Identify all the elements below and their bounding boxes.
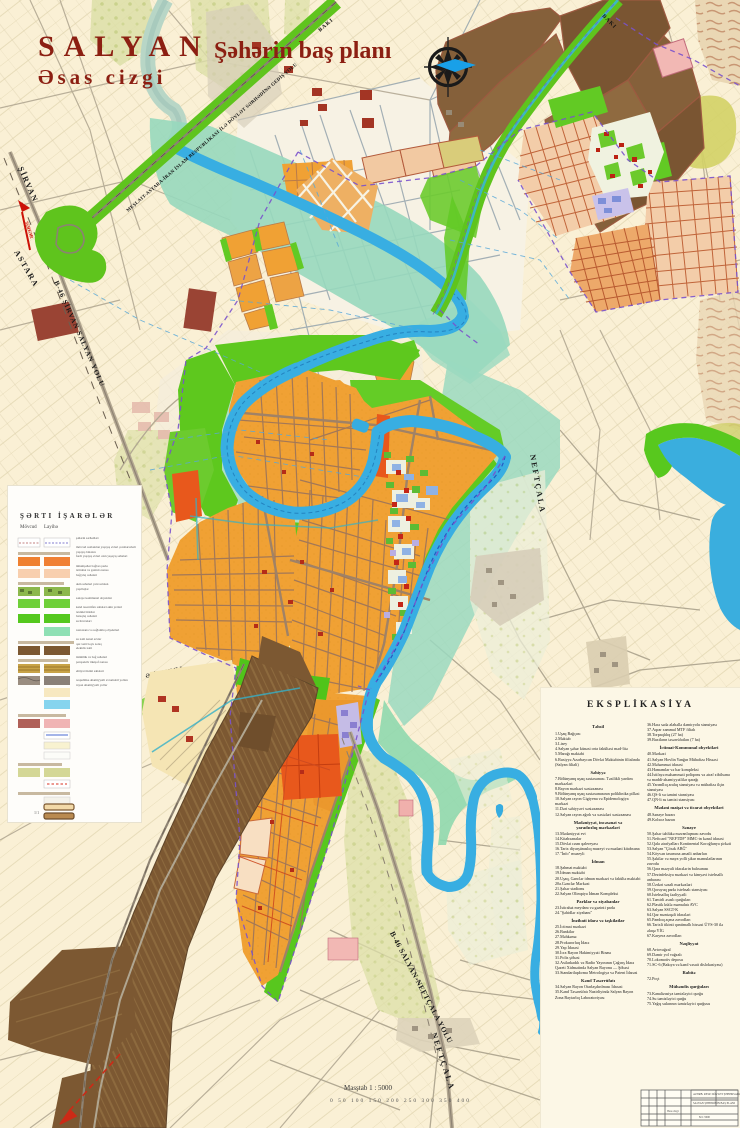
svg-text:Əsas cizgi: Əsas cizgi [667, 1110, 679, 1113]
svg-text:0 50 100 150 200 250 300: 0 50 100 150 200 250 300 350 400 [330, 1098, 471, 1104]
svg-text:M 1:5000: M 1:5000 [699, 1116, 711, 1119]
svg-text:AZƏRB. RESP. DÖVLƏT ŞƏHƏRSALMA: AZƏRB. RESP. DÖVLƏT ŞƏHƏRSALMA KOM. [693, 1093, 740, 1096]
svg-text:SALYAN: SALYAN [38, 30, 210, 63]
svg-text:Şəhərin baş planı: Şəhərin baş planı [214, 38, 392, 64]
svg-text:Əsas cizgi: Əsas cizgi [38, 65, 166, 89]
svg-text:SALYAN ŞƏHƏRİNİN BAŞ PLANI: SALYAN ŞƏHƏRİNİN BAŞ PLANI [693, 1102, 735, 1105]
svg-text:Masştab 1 : 5000: Masştab 1 : 5000 [344, 1084, 393, 1092]
